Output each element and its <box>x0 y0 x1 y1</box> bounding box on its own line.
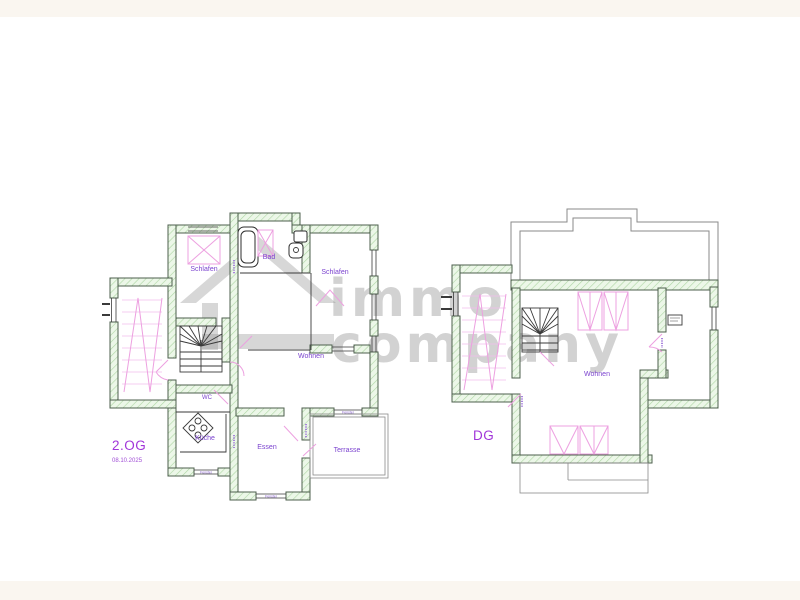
room-label-schlafen-right: Schlafen <box>321 269 348 276</box>
cistern-icon <box>294 231 307 242</box>
room-label-wc: WC <box>202 395 213 401</box>
room-label-wohnen: Wohnen <box>298 353 324 360</box>
room-label-bad: Bad <box>263 254 276 261</box>
window-sill-tick <box>441 296 452 298</box>
floor-label-dg: DG <box>473 428 494 443</box>
page: { "frame": { "background": "#faf6f0", "c… <box>0 0 800 600</box>
window-sill-tick <box>102 303 110 305</box>
washbasin-icon <box>289 243 303 258</box>
room-label-essen: Essen <box>257 444 277 451</box>
window-label: Fenster <box>200 471 213 475</box>
bathtub-inner <box>241 231 255 263</box>
window-sill-tick <box>441 308 452 310</box>
floor-label-2og: 2.OG <box>112 438 146 453</box>
floorplan-image: immo company <box>0 0 800 600</box>
window-label: Fenster <box>342 411 355 415</box>
plan-date: 08.10.2025 <box>112 458 143 464</box>
room-label-terrasse: Terrasse <box>334 447 361 454</box>
window-label: Fenster <box>265 495 278 499</box>
room-label-schlafen-left: Schlafen <box>190 266 217 273</box>
room-label-kueche: Küche <box>195 435 215 442</box>
room-label-wohnen-dg: Wohnen <box>584 371 610 378</box>
window-sill-tick <box>102 314 110 316</box>
